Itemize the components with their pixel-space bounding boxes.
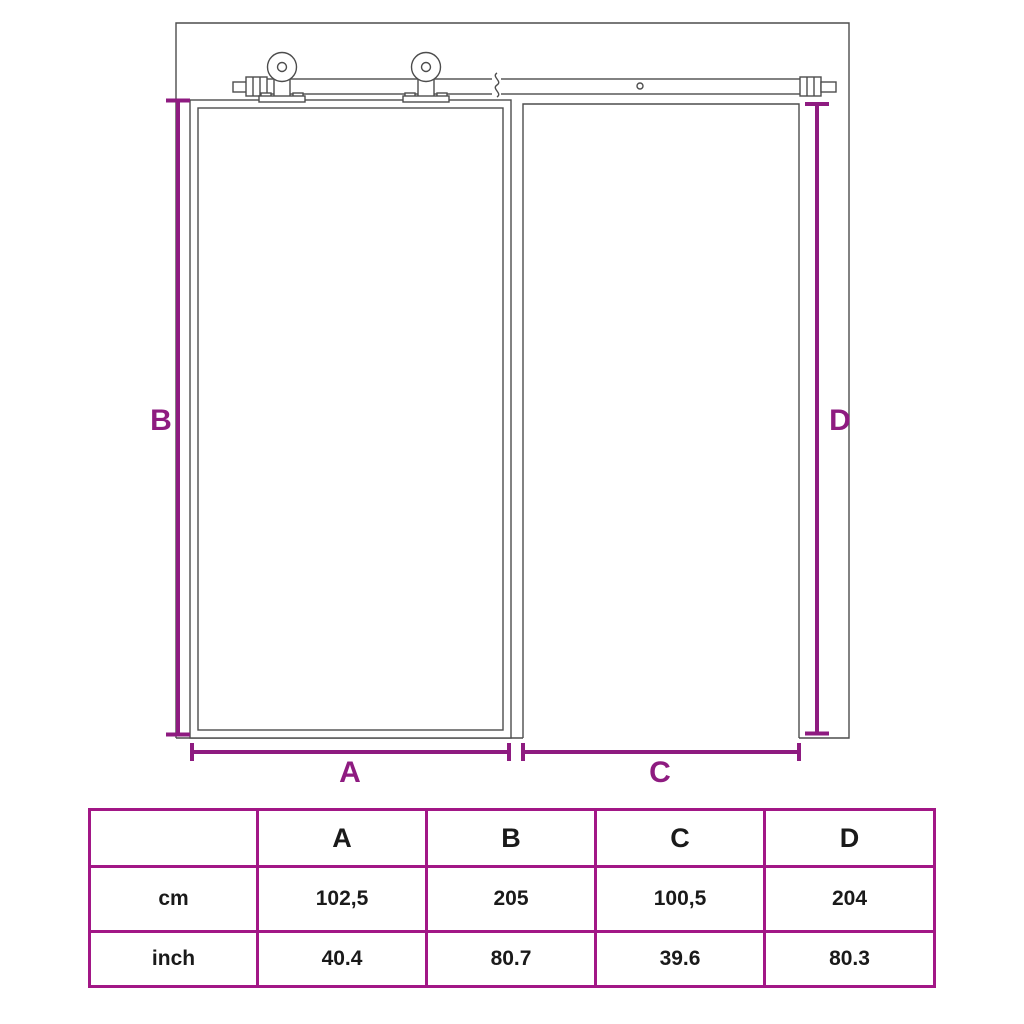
unit-cell-cm: cm [90, 867, 258, 932]
table-row-cm: cm 102,5 205 100,5 204 [90, 867, 935, 932]
header-cell-d: D [765, 810, 935, 867]
rail-break-gap [492, 78, 501, 95]
roller-right [403, 53, 449, 103]
header-cell-b: B [427, 810, 596, 867]
roller-right-wheel [412, 53, 441, 82]
dimension-label-c: C [649, 756, 671, 789]
header-cell-a: A [258, 810, 427, 867]
inch-value-c: 39.6 [596, 932, 765, 987]
roller-right-plate [403, 96, 449, 102]
rail-end-stub-right [821, 82, 836, 92]
rail-end-cap-right [800, 77, 821, 96]
door-diagram: B D A C [0, 0, 1024, 800]
roller-left-plate [259, 96, 305, 102]
header-cell-empty [90, 810, 258, 867]
sliding-door-dimension-sheet: B D A C A B C D [0, 0, 1024, 1024]
table-row-inch: inch 40.4 80.7 39.6 80.3 [90, 932, 935, 987]
inch-value-a: 40.4 [258, 932, 427, 987]
dimension-line-c: C [523, 743, 799, 789]
header-cell-c: C [596, 810, 765, 867]
roller-left-wheel [268, 53, 297, 82]
table-header-row: A B C D [90, 810, 935, 867]
dimension-line-d: D [805, 104, 851, 734]
dimension-label-d: D [829, 404, 851, 437]
dimension-line-b: B [150, 101, 190, 735]
cm-value-d: 204 [765, 867, 935, 932]
inch-value-b: 80.7 [427, 932, 596, 987]
cm-value-a: 102,5 [258, 867, 427, 932]
dimensions-table: A B C D cm 102,5 205 100,5 204 inch 40.4… [88, 808, 936, 988]
dimension-label-b: B [150, 404, 172, 437]
door-panel [190, 100, 511, 738]
rail-bar [248, 79, 808, 94]
dimension-line-a: A [192, 743, 509, 789]
door-panel-outer [190, 100, 511, 738]
inch-value-d: 80.3 [765, 932, 935, 987]
dimension-label-a: A [339, 756, 361, 789]
door-opening [523, 104, 799, 738]
unit-cell-inch: inch [90, 932, 258, 987]
rail-track [233, 73, 836, 97]
cm-value-b: 205 [427, 867, 596, 932]
cm-value-c: 100,5 [596, 867, 765, 932]
